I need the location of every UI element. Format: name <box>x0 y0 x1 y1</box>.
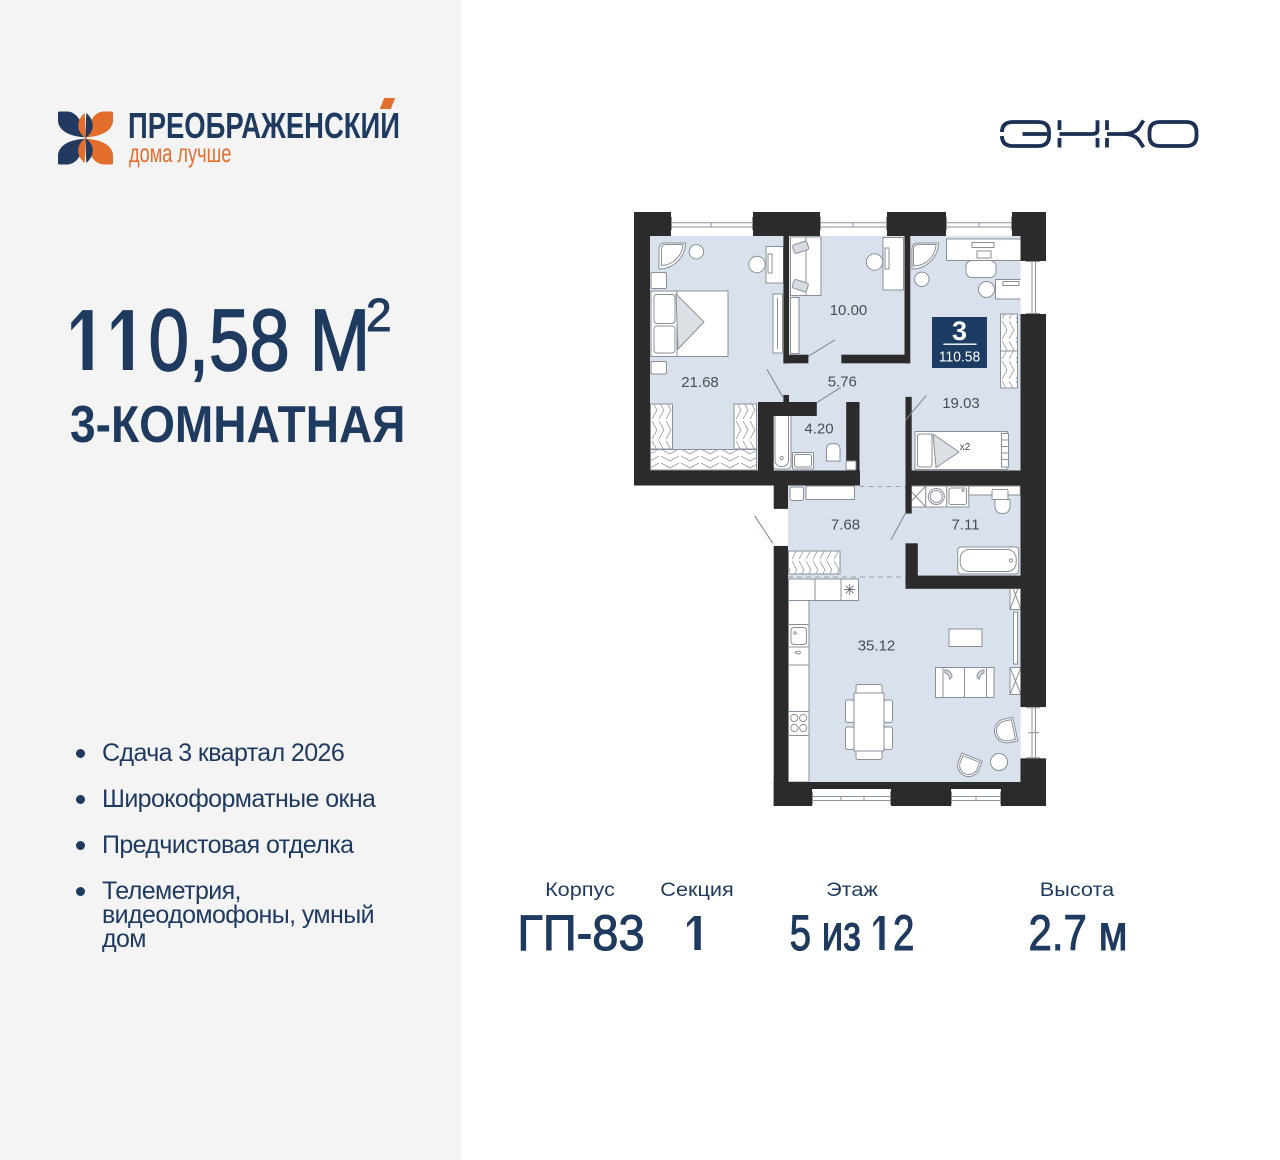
svg-text:3: 3 <box>952 316 967 346</box>
svg-text:10.00: 10.00 <box>830 302 868 319</box>
svg-text:5.76: 5.76 <box>828 374 857 391</box>
svg-text:19.03: 19.03 <box>942 395 980 412</box>
svg-text:x2: x2 <box>960 442 971 453</box>
svg-text:35.12: 35.12 <box>858 638 896 655</box>
svg-text:110.58: 110.58 <box>939 349 980 365</box>
svg-text:4.20: 4.20 <box>804 421 833 438</box>
svg-text:7.68: 7.68 <box>831 516 860 533</box>
svg-text:21.68: 21.68 <box>681 374 719 391</box>
svg-text:7.11: 7.11 <box>951 516 979 533</box>
